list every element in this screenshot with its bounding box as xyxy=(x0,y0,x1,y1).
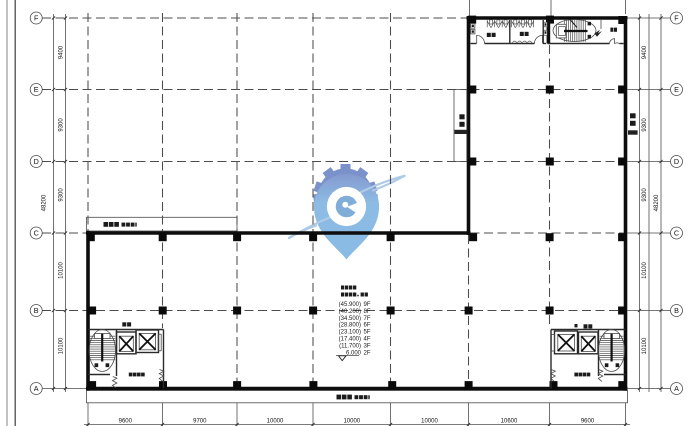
svg-text:6F: 6F xyxy=(363,323,370,329)
svg-text:10000: 10000 xyxy=(421,419,438,425)
svg-text:(34.500): (34.500) xyxy=(339,316,361,322)
svg-text:10100: 10100 xyxy=(58,337,64,354)
svg-text:(23.100): (23.100) xyxy=(339,330,361,336)
svg-text:(45.900): (45.900) xyxy=(339,302,361,308)
svg-text:10600: 10600 xyxy=(501,419,518,425)
svg-text:2F: 2F xyxy=(363,350,370,356)
svg-text:9300: 9300 xyxy=(58,188,64,202)
svg-text:D: D xyxy=(674,157,679,166)
svg-text:9300: 9300 xyxy=(642,118,648,132)
svg-text:9700: 9700 xyxy=(193,419,207,425)
svg-text:9F: 9F xyxy=(363,302,370,308)
svg-text:E: E xyxy=(34,85,39,94)
svg-text:10000: 10000 xyxy=(267,419,284,425)
svg-text:(28.800): (28.800) xyxy=(339,323,361,329)
svg-text:48200: 48200 xyxy=(654,194,660,211)
svg-text:B: B xyxy=(674,306,679,315)
svg-text:9300: 9300 xyxy=(642,188,648,202)
svg-text:E: E xyxy=(674,85,679,94)
svg-text:10100: 10100 xyxy=(642,261,648,278)
svg-text:(40.200): (40.200) xyxy=(339,309,361,315)
svg-text:5F: 5F xyxy=(363,330,370,336)
svg-text:F: F xyxy=(34,14,39,23)
svg-text:C: C xyxy=(674,229,679,238)
svg-text:9600: 9600 xyxy=(581,419,595,425)
svg-text:F: F xyxy=(674,14,679,23)
svg-text:9600: 9600 xyxy=(119,419,133,425)
svg-text:A: A xyxy=(34,384,39,393)
svg-text:9400: 9400 xyxy=(642,45,648,59)
svg-text:48200: 48200 xyxy=(42,194,48,211)
svg-text:D: D xyxy=(34,157,39,166)
svg-text:B: B xyxy=(34,306,39,315)
svg-text:3F: 3F xyxy=(363,343,370,349)
svg-text:10000: 10000 xyxy=(343,419,360,425)
svg-text:C: C xyxy=(34,229,39,238)
svg-text:(17.400): (17.400) xyxy=(339,337,361,343)
svg-text:10100: 10100 xyxy=(58,261,64,278)
svg-text:4F: 4F xyxy=(363,337,370,343)
svg-text:(11.700): (11.700) xyxy=(339,343,361,349)
svg-text:7F: 7F xyxy=(363,316,370,322)
svg-text:8F: 8F xyxy=(363,309,370,315)
svg-text:9400: 9400 xyxy=(58,45,64,59)
svg-text:9300: 9300 xyxy=(58,118,64,132)
svg-text:10100: 10100 xyxy=(642,337,648,354)
svg-text:A: A xyxy=(674,384,679,393)
